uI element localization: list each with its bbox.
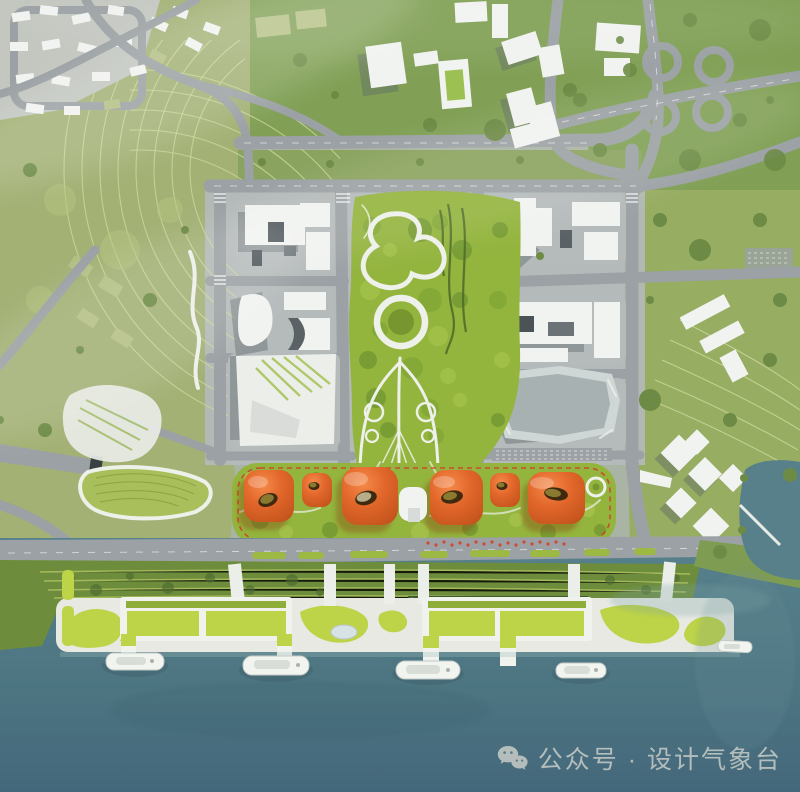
wechat-icon — [497, 745, 528, 772]
ferry-1 — [102, 653, 168, 677]
ferry-5 — [718, 640, 753, 653]
watermark-text: 公众号 · 设计气象台 — [538, 740, 782, 776]
block-L3-plaza — [230, 354, 336, 446]
ferry-4 — [552, 663, 610, 684]
teardrop-mound — [80, 467, 211, 518]
watermark: 公众号 · 设计气象台 — [497, 740, 782, 776]
masterplan-rendering: 公众号 · 设计气象台 — [0, 0, 800, 792]
orange-pavilion-strip — [232, 462, 616, 545]
ferry-2 — [239, 656, 313, 682]
ferry-3 — [392, 661, 464, 685]
masterplan-scene — [0, 0, 800, 792]
pavilion-5 — [490, 473, 520, 507]
pavilion-2 — [302, 473, 332, 507]
